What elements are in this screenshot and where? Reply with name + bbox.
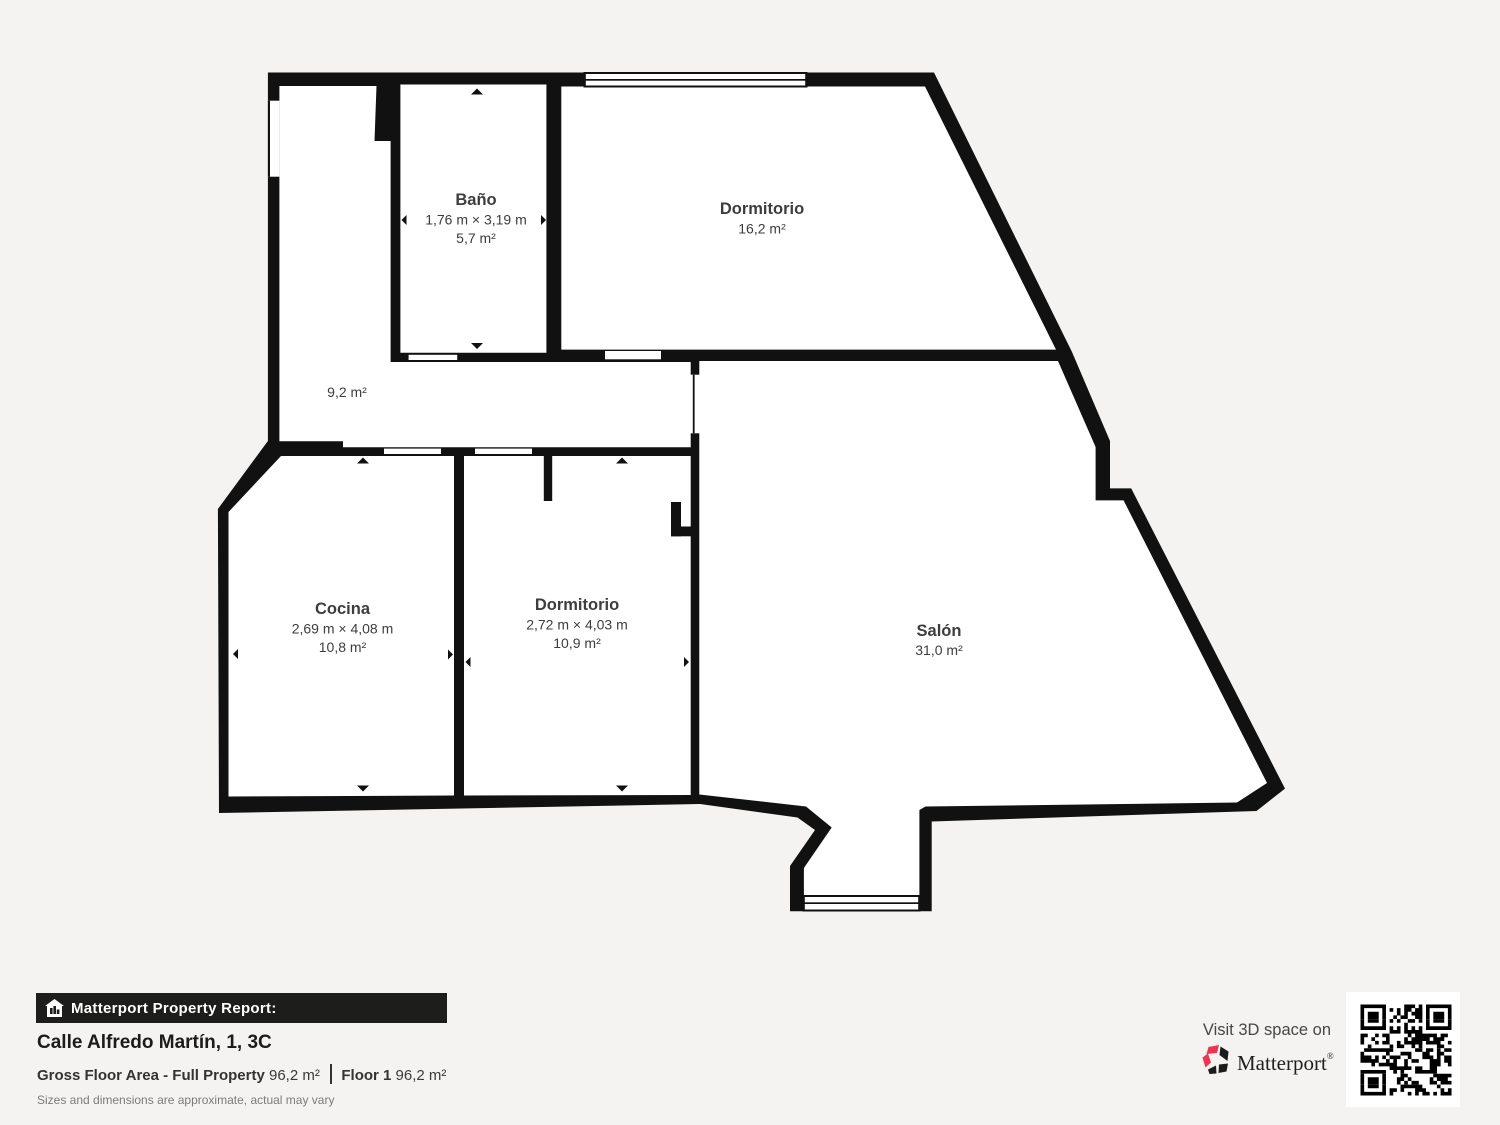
svg-text:10,9 m²: 10,9 m²: [553, 635, 601, 651]
svg-text:Dormitorio: Dormitorio: [720, 200, 804, 218]
svg-text:Salón: Salón: [917, 622, 962, 640]
svg-text:31,0 m²: 31,0 m²: [915, 642, 963, 658]
svg-text:16,2 m²: 16,2 m²: [738, 221, 786, 237]
svg-text:9,2 m²: 9,2 m²: [327, 384, 367, 400]
svg-text:Baño: Baño: [455, 191, 496, 209]
svg-text:5,7 m²: 5,7 m²: [456, 230, 496, 246]
svg-text:2,72 m × 4,03 m: 2,72 m × 4,03 m: [526, 617, 628, 633]
svg-text:2,69 m × 4,08 m: 2,69 m × 4,08 m: [292, 621, 394, 637]
svg-text:10,8 m²: 10,8 m²: [319, 639, 367, 655]
svg-text:1,76 m × 3,19 m: 1,76 m × 3,19 m: [425, 212, 527, 228]
svg-text:Dormitorio: Dormitorio: [535, 596, 619, 614]
svg-text:Cocina: Cocina: [315, 600, 371, 618]
